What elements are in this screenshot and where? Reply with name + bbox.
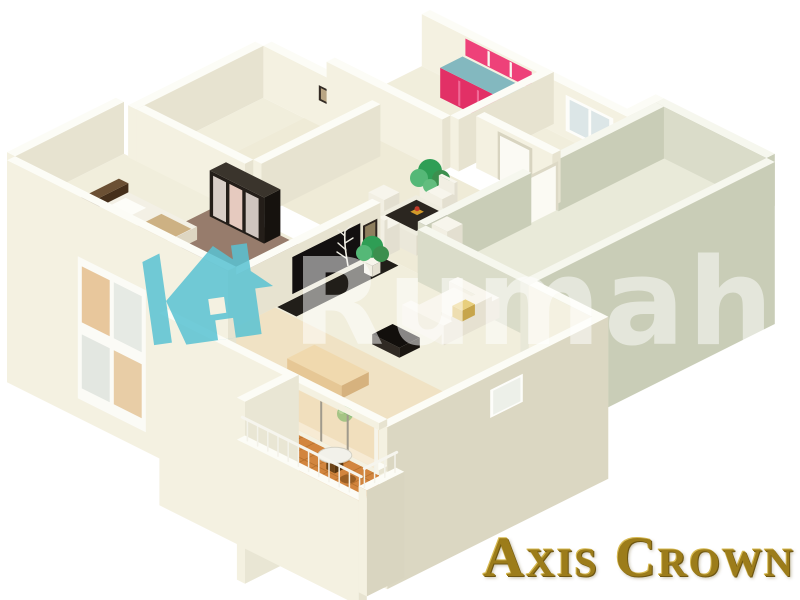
brand-logo-text: Axis Crown xyxy=(483,525,795,590)
floor-plan-3d-render: Rumah xyxy=(0,0,800,600)
floor-plan-image: Rumah Axis Crown xyxy=(0,0,800,600)
watermark-text: Rumah xyxy=(292,234,776,373)
